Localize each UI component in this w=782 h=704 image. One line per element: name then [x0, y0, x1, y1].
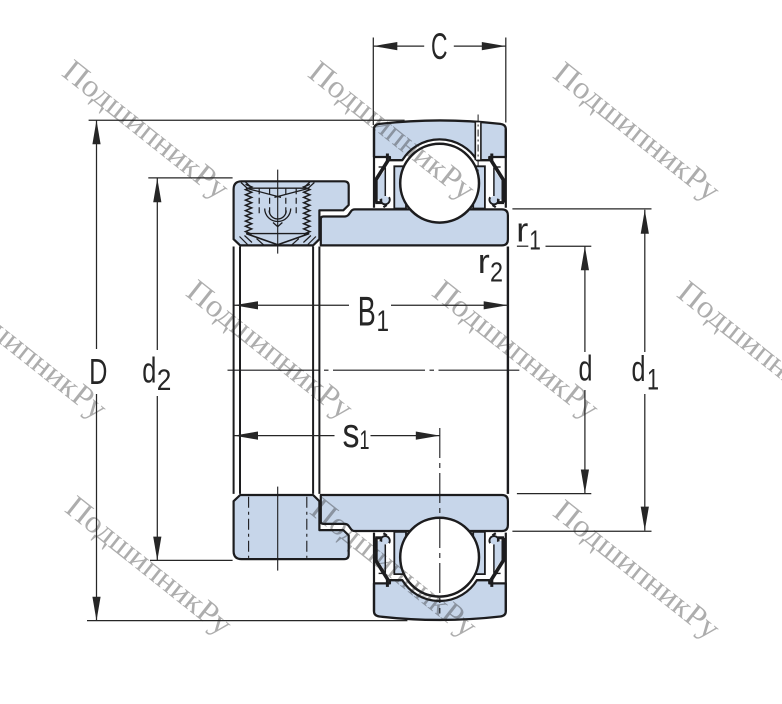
svg-text:1: 1 — [377, 305, 390, 338]
svg-text:B: B — [358, 288, 376, 335]
svg-text:1: 1 — [360, 425, 370, 455]
svg-text:d: d — [632, 348, 646, 389]
svg-text:2: 2 — [490, 257, 503, 288]
svg-text:d: d — [142, 349, 156, 390]
svg-text:r: r — [478, 243, 490, 281]
svg-text:r: r — [516, 212, 528, 250]
svg-text:1: 1 — [647, 364, 659, 397]
svg-text:ПодшипникРу: ПодшипникРу — [56, 52, 236, 206]
svg-text:1: 1 — [529, 225, 541, 256]
svg-text:ПодшипникРу: ПодшипникРу — [180, 272, 360, 426]
svg-text:2: 2 — [157, 364, 172, 397]
svg-text:ПодшипникРу: ПодшипникРу — [59, 488, 239, 642]
svg-text:ПодшипникРу: ПодшипникРу — [547, 492, 727, 646]
svg-text:ПодшипникРу: ПодшипникРу — [547, 54, 727, 208]
svg-text:C: C — [431, 25, 448, 67]
svg-text:ПодшипникРу: ПодшипникРу — [0, 272, 115, 426]
svg-text:ПодшипникРу: ПодшипникРу — [671, 273, 782, 427]
